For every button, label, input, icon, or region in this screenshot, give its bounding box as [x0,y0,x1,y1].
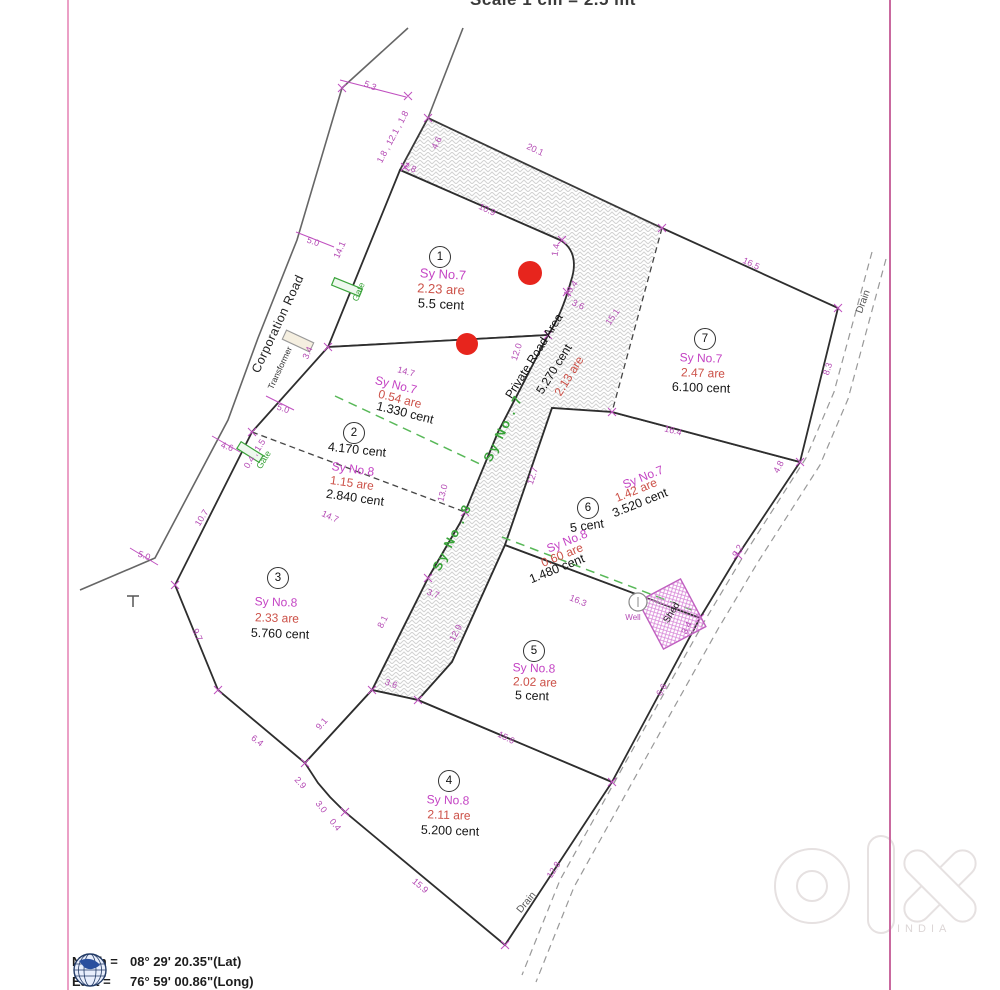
plot-3-cent-label: 5.760 cent [251,627,310,642]
globe-icon [72,952,108,988]
plot-3-number: 3 [267,567,289,589]
plot-4-are-label: 2.11 are [427,808,471,821]
north-value: 08° 29' 20.35"(Lat) [130,952,241,972]
plot-1-sy-label: Sy No.7 [420,266,467,281]
plot-1-number: 1 [429,246,451,268]
plot-7-number: 7 [694,328,716,350]
plan-geometry: INDIA [0,0,1000,990]
well-marker [629,593,647,611]
electric-pole-icon [127,596,139,607]
coordinates-footer: North = 08° 29' 20.35"(Lat) East = 76° 5… [72,952,254,990]
plot-3-are-label: 2.33 are [255,611,299,625]
well-label: Well [625,614,640,622]
east-value: 76° 59' 00.86"(Long) [130,972,254,990]
scale-note: Scale 1 cm = 2.5 mt [470,0,636,10]
red-marker-dot [518,261,542,285]
plot-7-cent-label: 6.100 cent [672,381,731,396]
plot-4-number: 4 [438,770,460,792]
plot-5-sy-label: Sy No.8 [512,661,555,674]
survey-plot-map: INDIA Scale 1 cm = 2.5 mt 5.3 1.8 , 12.1… [0,0,1000,990]
plot-1-are-label: 2.23 are [417,281,465,296]
plot-4-cent-label: 5.200 cent [421,824,480,839]
olx-x-glyph [899,845,981,927]
plot-3-sy-label: Sy No.8 [254,595,297,608]
plot-5-number: 5 [523,640,545,662]
plot-7-sy-label: Sy No.7 [679,351,722,364]
red-marker-dot [456,333,478,355]
plot-5-are-label: 2.02 are [513,675,557,689]
plot-1-cent-label: 5.5 cent [418,296,465,311]
plot-5-cent-label: 5 cent [515,689,549,703]
plot-7-are-label: 2.47 are [681,366,725,380]
corporation-road-inner-edge [428,28,463,118]
olx-india-text: INDIA [897,923,951,935]
olx-watermark: INDIA [775,836,981,935]
plot-4-sy-label: Sy No.8 [426,793,469,806]
plot-6-number: 6 [577,497,599,519]
